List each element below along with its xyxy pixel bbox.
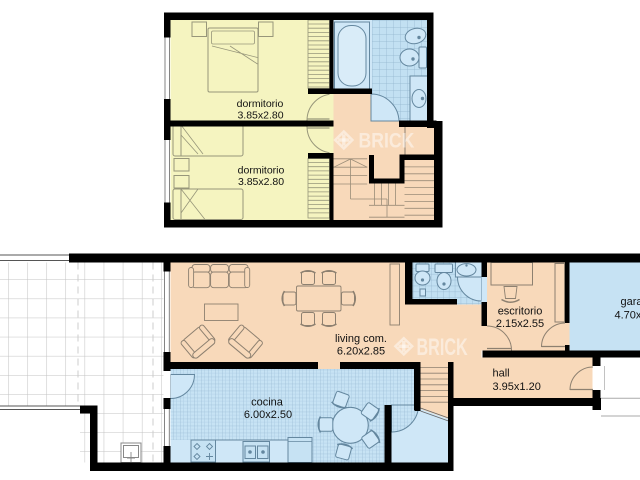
svg-text:6.20x2.85: 6.20x2.85 (337, 346, 385, 358)
svg-text:4.70x4.70: 4.70x4.70 (615, 310, 640, 322)
svg-text:dormitorio: dormitorio (237, 98, 284, 110)
svg-text:cocina: cocina (251, 397, 284, 409)
svg-text:hall: hall (493, 368, 510, 380)
svg-text:garage: garage (621, 296, 640, 308)
svg-text:dormitorio: dormitorio (238, 165, 285, 177)
svg-text:BRICK: BRICK (417, 334, 468, 361)
svg-text:3.85x2.80: 3.85x2.80 (238, 176, 284, 188)
svg-text:6.00x2.50: 6.00x2.50 (244, 409, 292, 421)
svg-text:escritorio: escritorio (498, 306, 543, 318)
svg-text:3.85x2.80: 3.85x2.80 (237, 110, 283, 122)
svg-text:3.95x1.20: 3.95x1.20 (493, 381, 541, 393)
svg-text:BRICK: BRICK (359, 129, 415, 153)
svg-text:living com.: living com. (335, 333, 387, 345)
svg-text:2.15x2.55: 2.15x2.55 (496, 318, 544, 330)
